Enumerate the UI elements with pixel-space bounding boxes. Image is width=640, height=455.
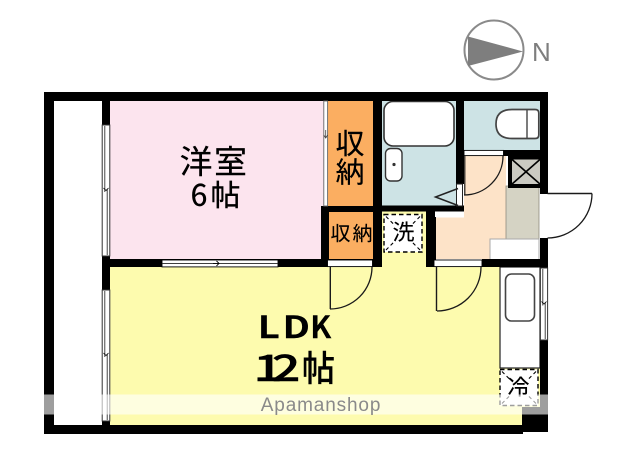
svg-text:Apamanshop: Apamanshop <box>261 395 381 416</box>
svg-text:N: N <box>532 37 551 67</box>
